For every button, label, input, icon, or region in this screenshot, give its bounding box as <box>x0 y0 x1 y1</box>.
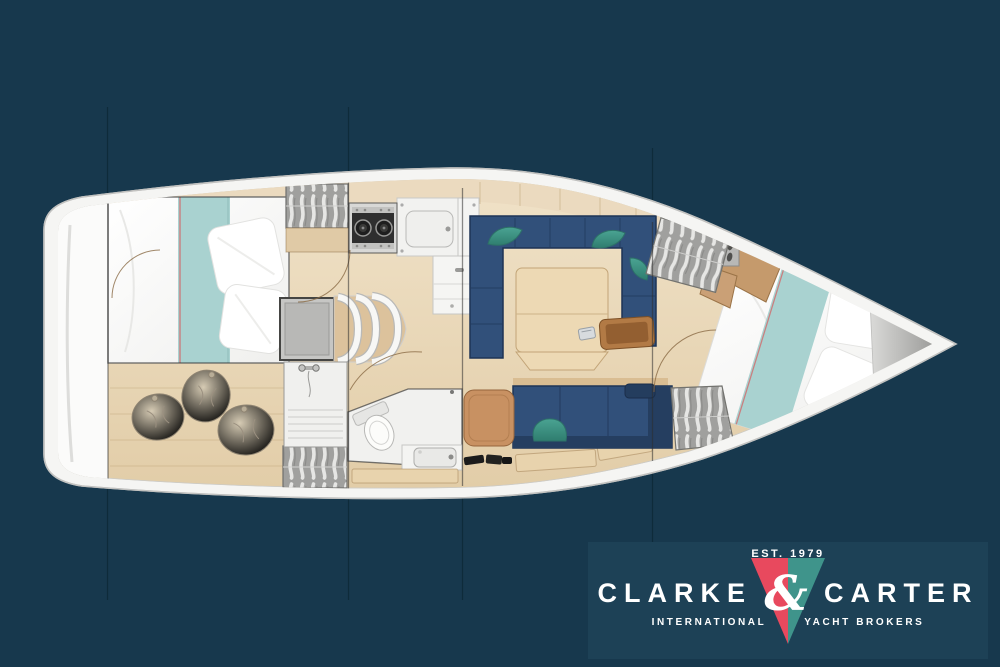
chart-seat <box>464 390 514 446</box>
cabinet-shelf <box>286 228 350 252</box>
logo-subtitle-left: INTERNATIONAL <box>652 617 767 628</box>
listing-image: EST. 1979 & CLARKE CARTER INTERNATIONAL … <box>0 0 1000 667</box>
shower-stall <box>284 362 347 447</box>
companionway-steps <box>334 296 406 362</box>
logo-name-row: CLARKE CARTER <box>588 578 988 609</box>
engine-box <box>280 298 334 360</box>
remote <box>578 327 596 341</box>
washbasin <box>402 445 462 470</box>
logo-subtitle-row: INTERNATIONAL YACHT BROKERS <box>588 617 988 628</box>
galley-stove <box>349 203 397 253</box>
tray <box>599 316 655 350</box>
logo-subtitle-right: YACHT BROKERS <box>804 617 924 628</box>
starboard-settee <box>513 378 672 448</box>
logo-name-right: CARTER <box>824 578 979 609</box>
broker-logo: EST. 1979 & CLARKE CARTER INTERNATIONAL … <box>588 542 988 659</box>
transom-area <box>58 204 108 480</box>
aft-cabin-berth <box>108 197 289 363</box>
logo-name-left: CLARKE <box>598 578 753 609</box>
wardrobe-port-forward <box>286 184 348 228</box>
wardrobe-port-aft <box>283 446 347 488</box>
